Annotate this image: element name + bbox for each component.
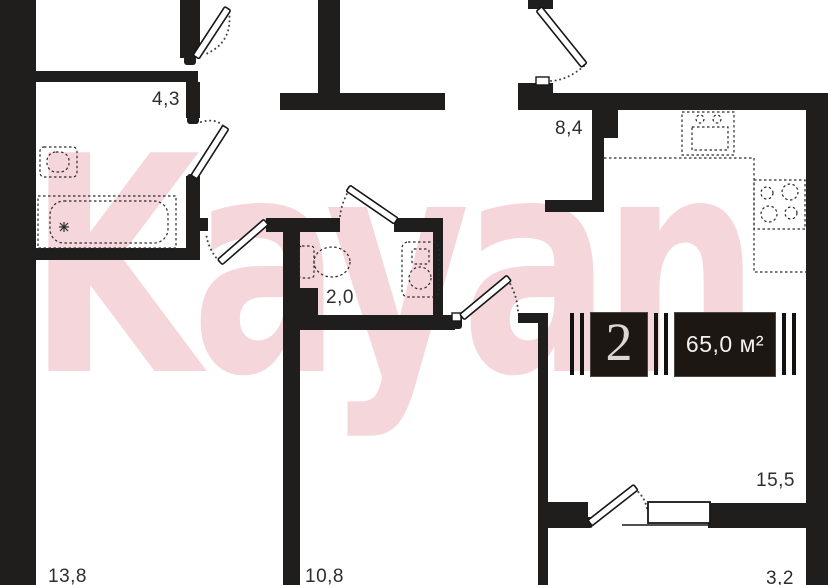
area-label-living-room: 15,5: [756, 470, 795, 492]
washbasin-icon: [402, 242, 439, 297]
balcony-window: [622, 502, 710, 525]
badge-room-count-box: 2: [590, 312, 648, 377]
badge-total-area-box: 65,0 м²: [674, 312, 776, 377]
area-label-hallway: 8,4: [555, 118, 583, 140]
plan-graphics: [0, 0, 828, 585]
badge-divider-bar: [654, 313, 658, 375]
door-bathroom: [191, 121, 229, 179]
badge-divider-bar: [570, 313, 574, 375]
floor-plan: Kayan: [0, 0, 828, 585]
door-balcony: [588, 485, 647, 526]
toilet-icon: [299, 246, 350, 278]
area-label-wc: 2,0: [326, 287, 354, 309]
area-label-balcony: 3,2: [766, 568, 794, 585]
badge-divider-bar: [580, 313, 584, 375]
bathroom-sink-icon: [40, 147, 77, 177]
door-room-center: [452, 275, 518, 321]
kitchen-sink-icon: [682, 112, 734, 155]
area-label-bedroom-left: 13,8: [48, 566, 87, 585]
badge-total-area: 65,0 м²: [686, 331, 764, 358]
door-entrance: [536, 7, 587, 85]
badge-divider-bar: [782, 313, 786, 375]
badge-divider-bars: [570, 313, 584, 375]
kitchen-counter-icon: [604, 158, 806, 272]
badge-divider-bar: [792, 313, 796, 375]
badge-room-count: 2: [606, 315, 633, 369]
door-top-left-room: [193, 7, 231, 59]
door-bedroom-left: [206, 219, 268, 264]
badge-divider-bars: [654, 313, 668, 375]
area-label-bathroom: 4,3: [152, 89, 180, 111]
badge-divider-bar: [664, 313, 668, 375]
badge-divider-bars: [782, 313, 796, 375]
bathtub-icon: [38, 196, 176, 248]
door-wc: [340, 185, 398, 224]
apartment-badge: 2 65,0 м²: [570, 311, 796, 377]
stove-icon: [754, 180, 805, 229]
area-label-room-center: 10,8: [305, 566, 344, 585]
